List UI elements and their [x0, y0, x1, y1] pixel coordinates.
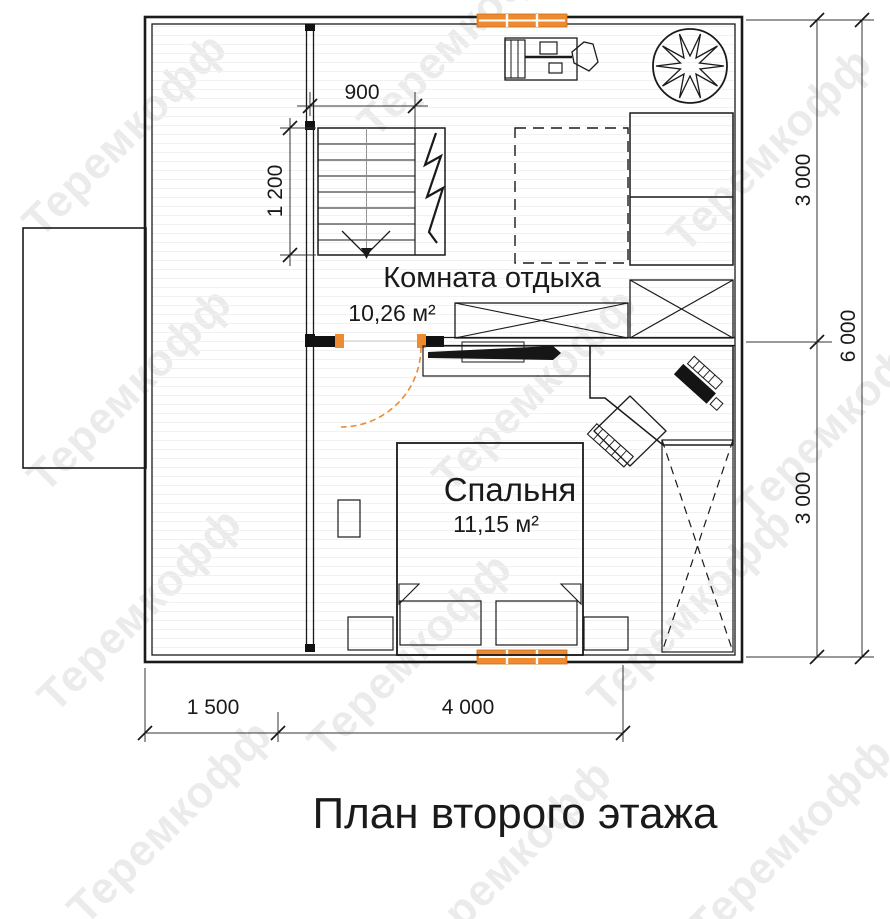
dim-label-3000-upper: 3 000: [792, 154, 815, 207]
dim-label-3000-lower: 3 000: [792, 472, 815, 525]
room-name-rest: Комната отдыха: [383, 262, 601, 294]
dim-label-1200: 1 200: [264, 165, 287, 218]
room-name-bedroom: Спальня: [444, 471, 577, 508]
door-jamb-left: [335, 334, 344, 348]
floor-plan-page: Теремкофф Теремкофф Теремкофф Теремкофф …: [0, 0, 890, 919]
room-area-rest: 10,26 м²: [348, 300, 436, 326]
dim-label-1500: 1 500: [187, 696, 240, 719]
floor-plan-canvas: Теремкофф Теремкофф Теремкофф Теремкофф …: [0, 0, 890, 919]
dim-label-4000: 4 000: [442, 696, 495, 719]
page-title: План второго этажа: [312, 789, 718, 838]
dim-label-900: 900: [344, 81, 379, 104]
window-bottom: [477, 650, 567, 664]
dim-label-6000: 6 000: [837, 310, 860, 363]
window-top: [477, 14, 567, 27]
room-area-bedroom: 11,15 м²: [453, 511, 539, 537]
